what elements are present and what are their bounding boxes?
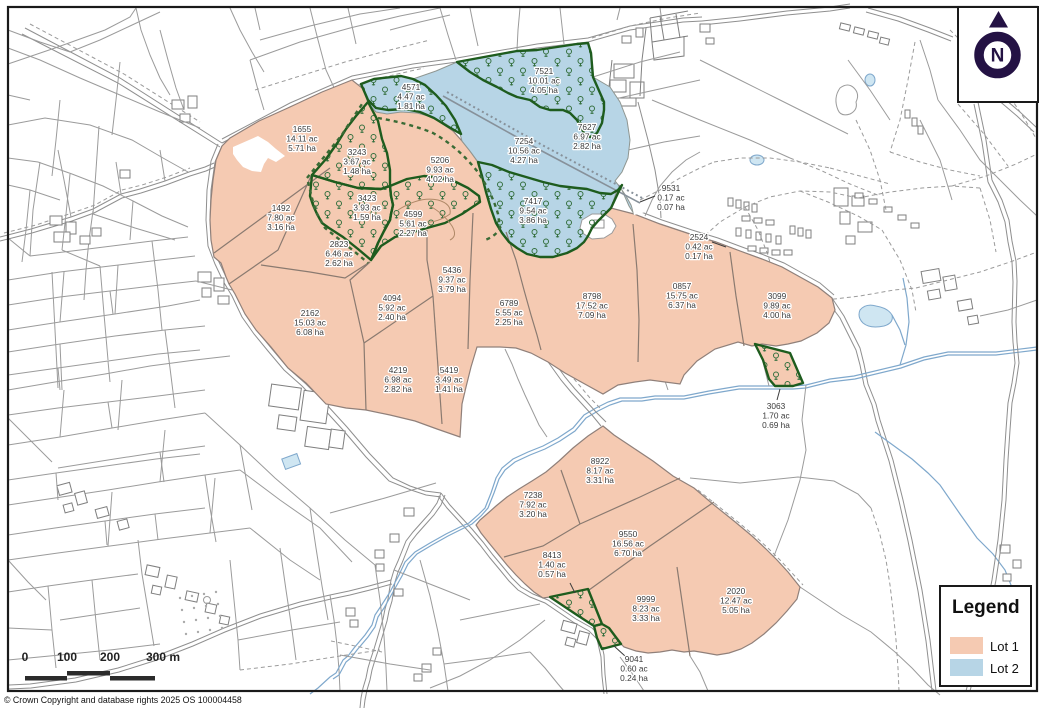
svg-text:100: 100 bbox=[57, 650, 77, 664]
svg-text:Legend: Legend bbox=[952, 597, 1020, 618]
svg-text:N: N bbox=[991, 46, 1005, 67]
svg-text:200: 200 bbox=[100, 650, 120, 664]
svg-text:0: 0 bbox=[22, 650, 29, 664]
svg-text:© Crown Copyright and database: © Crown Copyright and database rights 20… bbox=[4, 695, 242, 705]
svg-text:Lot 2: Lot 2 bbox=[990, 661, 1019, 676]
svg-text:Lot 1: Lot 1 bbox=[990, 639, 1019, 654]
svg-text:300 m: 300 m bbox=[146, 650, 180, 664]
